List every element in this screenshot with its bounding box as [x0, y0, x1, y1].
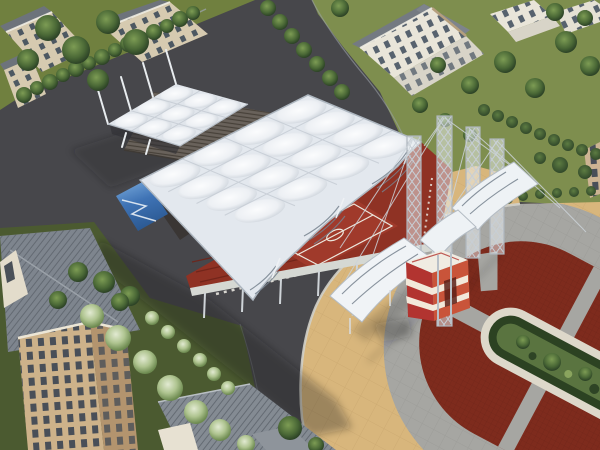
window-grid	[18, 322, 104, 450]
render-viewport	[0, 0, 600, 450]
architectural-render	[0, 0, 600, 450]
truss-pylon-1	[407, 136, 421, 252]
